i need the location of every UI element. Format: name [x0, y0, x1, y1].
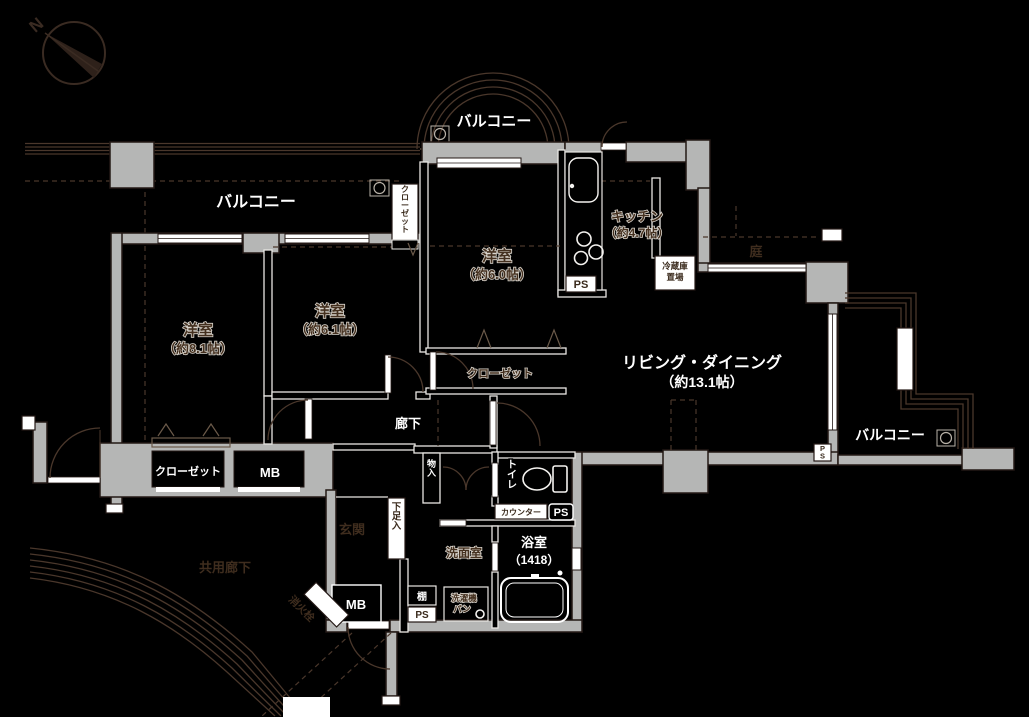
bathroom-door	[492, 543, 498, 571]
washroom-door	[440, 520, 466, 526]
label-entrance: 玄関	[339, 522, 365, 537]
pillar-northeast	[686, 140, 710, 190]
label-closet-west: クローゼット	[155, 464, 221, 478]
label-living-dining-size: （約13.1帖）	[660, 374, 743, 390]
label-washroom: 洗面室	[446, 545, 482, 560]
center-closet-strip: クローゼット	[392, 184, 418, 255]
balcony-panel	[897, 328, 913, 390]
label-fridge-space-2: 置場	[666, 272, 684, 282]
floor-plan-drawing: N バルコニー バルコニー	[0, 0, 1029, 717]
west-balcony: バルコニー	[25, 142, 420, 240]
label-bathroom-size: （1418）	[509, 552, 560, 567]
bedroom-north-door	[430, 352, 436, 390]
label-mb-south: MB	[346, 597, 366, 612]
washroom: 洗面室 洗濯機 パン 棚 PS	[408, 545, 488, 622]
label-counter: カウンター	[501, 507, 541, 517]
toilet-bowl-icon	[523, 468, 551, 490]
floor-plan-page: N バルコニー バルコニー	[0, 0, 1029, 717]
label-fridge-space-1: 冷蔵庫	[662, 261, 688, 271]
label-balcony-east: バルコニー	[855, 427, 925, 443]
bathroom: 浴室 （1418）	[501, 535, 568, 622]
kitchen-balcony-door	[601, 143, 626, 150]
pillar-center	[663, 450, 708, 493]
hanger-icon	[547, 330, 561, 348]
pillar-east	[806, 262, 848, 303]
label-closet-north: クローゼット	[467, 366, 533, 380]
toilet-tank-icon	[553, 466, 567, 492]
label-kitchen: キッチン	[611, 209, 663, 224]
label-bedroom-center-size: （約6.1帖）	[295, 322, 365, 337]
hanger-icon	[158, 424, 174, 436]
label-ps-kitchen: PS	[574, 279, 589, 291]
label-garden: 庭	[749, 244, 763, 259]
label-hall-storage: 物入	[426, 458, 436, 478]
label-balcony-west: バルコニー	[216, 193, 296, 211]
bedroom-center-door	[385, 355, 391, 393]
label-ps-balcony: PS	[820, 444, 825, 461]
common-corridor: 共用廊下	[30, 548, 330, 717]
toilet-room: トイレ カウンター PS	[495, 459, 573, 520]
label-ps-toilet: PS	[554, 507, 569, 519]
side-door	[48, 477, 100, 483]
label-bathroom: 浴室	[521, 535, 547, 550]
label-shoe-cabinet: 下足入	[391, 502, 402, 532]
label-mb-west: MB	[260, 465, 280, 480]
label-closet-center: クローゼット	[401, 184, 409, 234]
pillar-southeast	[962, 448, 1014, 470]
toilet-door	[492, 463, 498, 497]
label-bedroom-north: 洋室	[482, 247, 512, 265]
bathtub-icon	[501, 578, 568, 622]
label-toilet: トイレ	[507, 459, 517, 491]
label-bedroom-center: 洋室	[315, 302, 345, 320]
label-laundry-2: パン	[453, 604, 471, 614]
living-door	[490, 401, 496, 445]
bedroom-west-door	[305, 399, 312, 439]
pillar-northwest	[110, 142, 154, 188]
label-kitchen-size: （約4.7帖）	[605, 225, 670, 240]
label-bedroom-west: 洋室	[183, 321, 213, 339]
north-closet: クローゼット	[467, 330, 561, 380]
faucet-icon	[558, 571, 563, 576]
hanger-icon	[203, 424, 219, 436]
hanger-icon	[477, 330, 491, 348]
label-shelf: 棚	[417, 590, 427, 603]
label-laundry-1: 洗濯機	[451, 593, 477, 603]
window-bathroom	[572, 548, 581, 570]
label-bedroom-west-size: （約8.1帖）	[163, 341, 233, 356]
compass-north-label: N	[26, 14, 48, 36]
balcony-drain-icon	[370, 180, 389, 196]
label-ps-washroom: PS	[415, 610, 429, 621]
label-living-dining: リビング・ダイニング	[622, 353, 782, 372]
label-corridor: 廊下	[395, 416, 421, 431]
label-bedroom-north-size: （約6.0帖）	[462, 267, 532, 282]
label-common-corridor: 共用廊下	[199, 560, 251, 575]
label-balcony-north: バルコニー	[457, 113, 532, 130]
faucet-icon	[570, 184, 574, 188]
compass-icon: N	[26, 14, 105, 84]
north-balcony: バルコニー	[417, 73, 569, 149]
balcony-drain-icon	[937, 430, 955, 446]
